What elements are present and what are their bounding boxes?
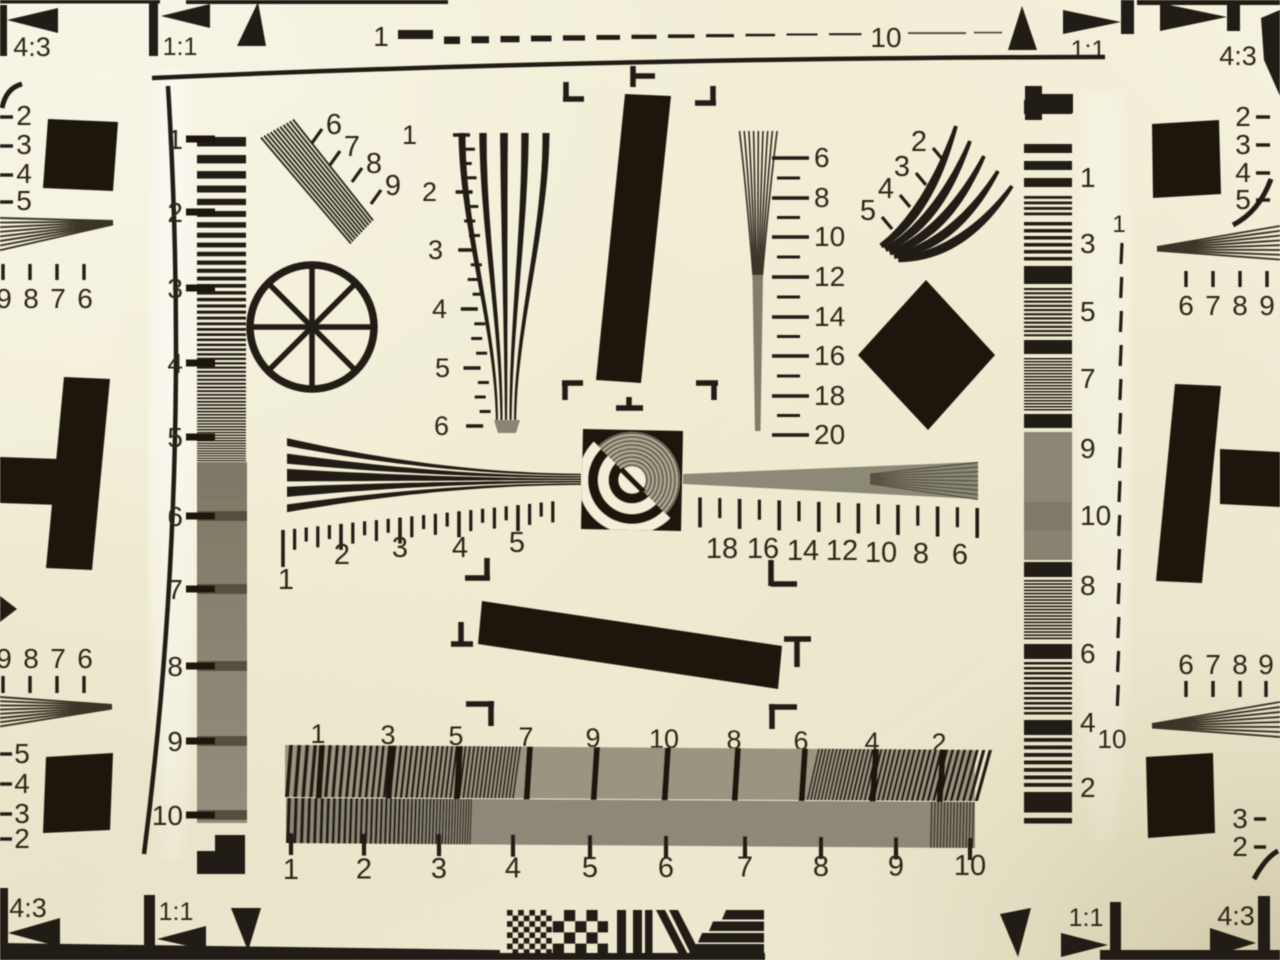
svg-text:1: 1 [373, 21, 389, 52]
svg-text:7: 7 [50, 283, 66, 314]
svg-text:8: 8 [913, 538, 929, 570]
svg-text:8: 8 [366, 148, 382, 180]
svg-text:8: 8 [813, 851, 829, 883]
svg-text:8: 8 [1232, 649, 1248, 680]
svg-text:1: 1 [402, 120, 417, 150]
svg-text:9: 9 [167, 726, 183, 757]
svg-text:7: 7 [167, 574, 183, 605]
svg-text:1:1: 1:1 [163, 33, 198, 61]
svg-text:7: 7 [50, 643, 66, 674]
svg-text:2: 2 [422, 177, 437, 207]
svg-text:2: 2 [334, 539, 350, 571]
svg-text:3: 3 [431, 853, 447, 885]
svg-text:1: 1 [1112, 211, 1125, 238]
svg-text:16: 16 [747, 533, 779, 565]
svg-text:10: 10 [1080, 500, 1111, 531]
svg-text:6: 6 [326, 109, 342, 141]
svg-text:2: 2 [1235, 101, 1251, 132]
svg-text:9: 9 [1258, 649, 1274, 680]
svg-text:5: 5 [509, 527, 525, 559]
svg-text:9: 9 [1080, 433, 1096, 464]
svg-text:8: 8 [23, 283, 39, 314]
svg-text:10: 10 [954, 850, 986, 882]
svg-text:4:3: 4:3 [1217, 901, 1255, 931]
svg-text:7: 7 [737, 851, 753, 883]
svg-text:4: 4 [167, 348, 183, 379]
svg-text:18: 18 [706, 533, 738, 565]
svg-text:2: 2 [14, 823, 30, 854]
svg-text:10: 10 [1098, 724, 1127, 754]
svg-text:6: 6 [952, 539, 968, 571]
svg-text:9: 9 [385, 170, 401, 202]
svg-text:3: 3 [1232, 803, 1248, 834]
svg-text:9: 9 [0, 283, 12, 314]
svg-text:6: 6 [1178, 649, 1194, 680]
svg-text:14: 14 [787, 535, 819, 567]
svg-text:8: 8 [1232, 290, 1248, 321]
svg-text:5: 5 [582, 852, 598, 884]
svg-text:7: 7 [1205, 290, 1221, 321]
svg-text:1: 1 [310, 719, 325, 749]
svg-text:1:1: 1:1 [159, 898, 194, 926]
svg-text:8: 8 [23, 643, 39, 674]
svg-text:10: 10 [870, 22, 901, 53]
svg-text:6: 6 [814, 142, 830, 173]
svg-text:1: 1 [1080, 162, 1096, 193]
svg-text:1: 1 [278, 564, 294, 596]
svg-text:5: 5 [167, 422, 183, 453]
svg-text:9: 9 [0, 643, 12, 674]
svg-text:1:1: 1:1 [1069, 904, 1104, 932]
svg-text:8: 8 [814, 182, 830, 213]
svg-text:4:3: 4:3 [1219, 41, 1257, 71]
svg-text:3: 3 [167, 273, 183, 304]
svg-text:5: 5 [1235, 184, 1251, 215]
svg-text:3: 3 [380, 720, 395, 750]
svg-text:3: 3 [1080, 228, 1096, 259]
svg-text:4: 4 [878, 173, 894, 205]
svg-text:16: 16 [814, 340, 845, 371]
svg-text:4: 4 [1080, 707, 1096, 738]
svg-text:8: 8 [1080, 570, 1096, 601]
svg-text:7: 7 [344, 131, 360, 163]
svg-text:1: 1 [283, 854, 299, 886]
svg-text:6: 6 [434, 411, 449, 441]
svg-text:2: 2 [911, 126, 927, 158]
svg-text:5: 5 [435, 353, 450, 383]
svg-text:2: 2 [356, 854, 372, 886]
svg-text:14: 14 [814, 301, 845, 332]
svg-text:5: 5 [1080, 296, 1096, 327]
svg-text:18: 18 [814, 380, 845, 411]
svg-text:7: 7 [1080, 363, 1096, 394]
svg-text:2: 2 [1232, 831, 1248, 862]
svg-text:9: 9 [1259, 290, 1275, 321]
svg-text:4: 4 [452, 532, 468, 564]
svg-text:20: 20 [814, 419, 845, 450]
svg-text:5: 5 [860, 195, 876, 227]
svg-text:3: 3 [16, 129, 32, 160]
svg-text:4: 4 [432, 294, 447, 324]
svg-text:2: 2 [167, 197, 183, 228]
svg-text:6: 6 [1080, 638, 1096, 669]
svg-text:10: 10 [814, 221, 845, 252]
svg-text:4:3: 4:3 [9, 893, 47, 923]
svg-text:3: 3 [1235, 129, 1251, 160]
svg-text:1:1: 1:1 [1071, 36, 1106, 64]
svg-text:1: 1 [167, 124, 183, 155]
svg-text:2: 2 [16, 100, 32, 131]
svg-text:4:3: 4:3 [13, 32, 51, 62]
svg-text:3: 3 [392, 532, 408, 564]
svg-text:6: 6 [167, 501, 183, 532]
svg-text:5: 5 [16, 185, 32, 216]
svg-text:10: 10 [152, 800, 183, 831]
svg-text:3: 3 [428, 235, 443, 265]
svg-text:4: 4 [505, 853, 521, 885]
svg-text:5: 5 [14, 738, 30, 769]
svg-text:6: 6 [77, 283, 93, 314]
svg-text:9: 9 [888, 850, 904, 882]
svg-text:10: 10 [865, 537, 897, 569]
svg-text:4: 4 [14, 768, 30, 799]
svg-text:7: 7 [1205, 649, 1221, 680]
svg-text:6: 6 [658, 852, 674, 884]
svg-text:6: 6 [1178, 290, 1194, 321]
svg-text:8: 8 [167, 651, 183, 682]
svg-text:12: 12 [814, 261, 845, 292]
svg-text:3: 3 [894, 151, 910, 183]
svg-text:2: 2 [1080, 772, 1096, 803]
svg-text:6: 6 [77, 643, 93, 674]
svg-text:12: 12 [826, 535, 858, 567]
